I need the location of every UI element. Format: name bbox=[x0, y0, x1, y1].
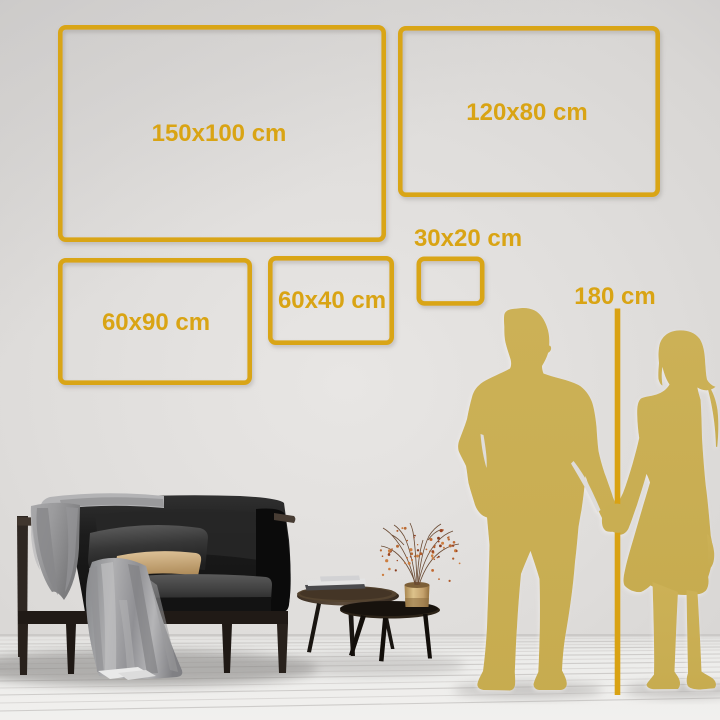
svg-text:150x100 cm: 150x100 cm bbox=[152, 120, 287, 147]
svg-text:60x90 cm: 60x90 cm bbox=[102, 309, 210, 336]
svg-text:60x40 cm: 60x40 cm bbox=[278, 287, 386, 314]
svg-text:120x80 cm: 120x80 cm bbox=[466, 99, 587, 126]
svg-text:180 cm: 180 cm bbox=[574, 283, 655, 310]
svg-text:30x20 cm: 30x20 cm bbox=[414, 225, 522, 252]
